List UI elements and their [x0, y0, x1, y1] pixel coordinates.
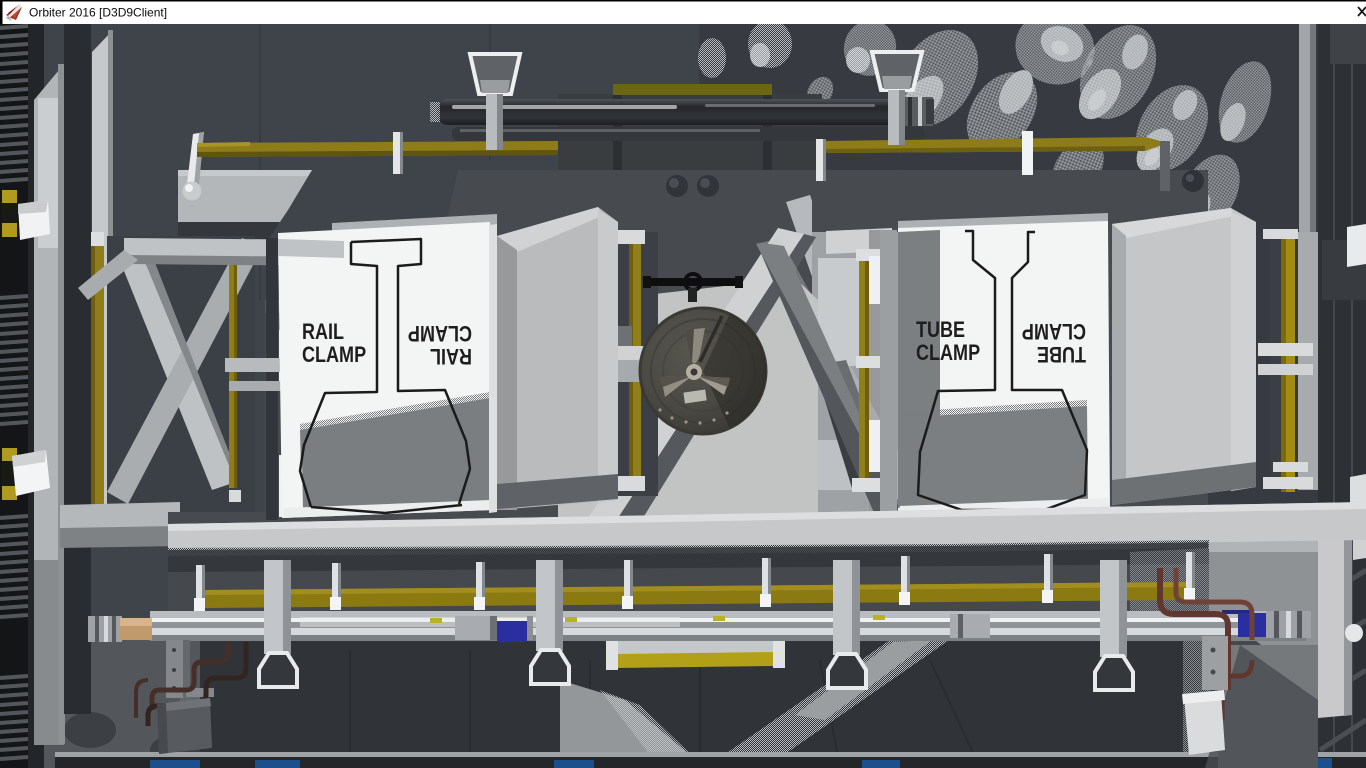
- svg-text:RAIL: RAIL: [430, 344, 472, 368]
- svg-text:RAIL: RAIL: [302, 320, 344, 344]
- svg-text:CLAMP: CLAMP: [916, 341, 980, 365]
- svg-text:Orbiter 2016 [D3D9Client]: Orbiter 2016 [D3D9Client]: [29, 6, 167, 20]
- svg-text:TUBE: TUBE: [1037, 342, 1086, 366]
- svg-text:CLAMP: CLAMP: [1022, 319, 1086, 343]
- svg-text:CLAMP: CLAMP: [302, 343, 366, 367]
- svg-text:CLAMP: CLAMP: [408, 321, 472, 345]
- svg-text:TUBE: TUBE: [916, 318, 965, 342]
